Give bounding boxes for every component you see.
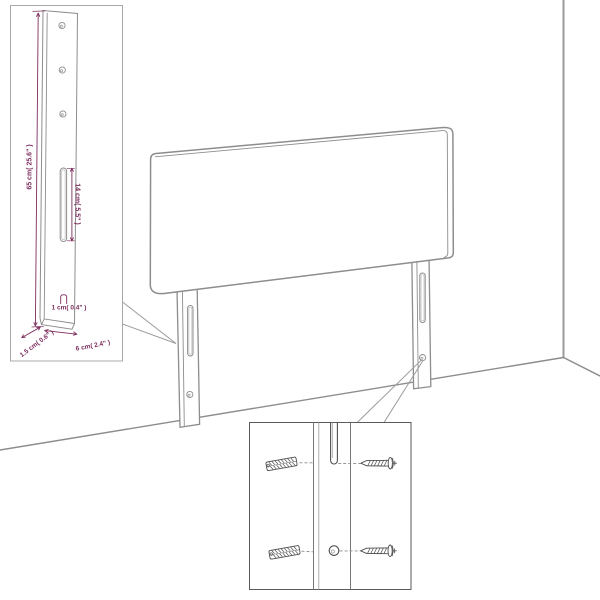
diagram-page: { "figure": { "type": "furniture-assembl… [0,0,600,600]
right-leg-screw-hole [420,355,426,361]
front-view-screw-hole [329,546,339,556]
inset1-callout-lines [123,302,177,344]
mounting-hardware-inset [250,423,412,590]
wall-base-right-line [564,358,600,377]
dimension-label-slot-width: 1 cm( 0.4" ) [52,305,87,312]
right-leg-keyhole-slot [420,273,425,323]
dimension-label-slot-length: 14 cm( 5.5" ) [74,183,81,224]
left-leg-screw-hole [187,391,193,397]
left-leg-keyhole-slot [188,306,193,357]
headboard-panel [150,127,453,293]
side-view-keyhole-slot [60,168,66,242]
dimension-label-leg-height: 65 cm( 25.6" ) [27,144,34,189]
assembly-diagram [0,0,600,600]
